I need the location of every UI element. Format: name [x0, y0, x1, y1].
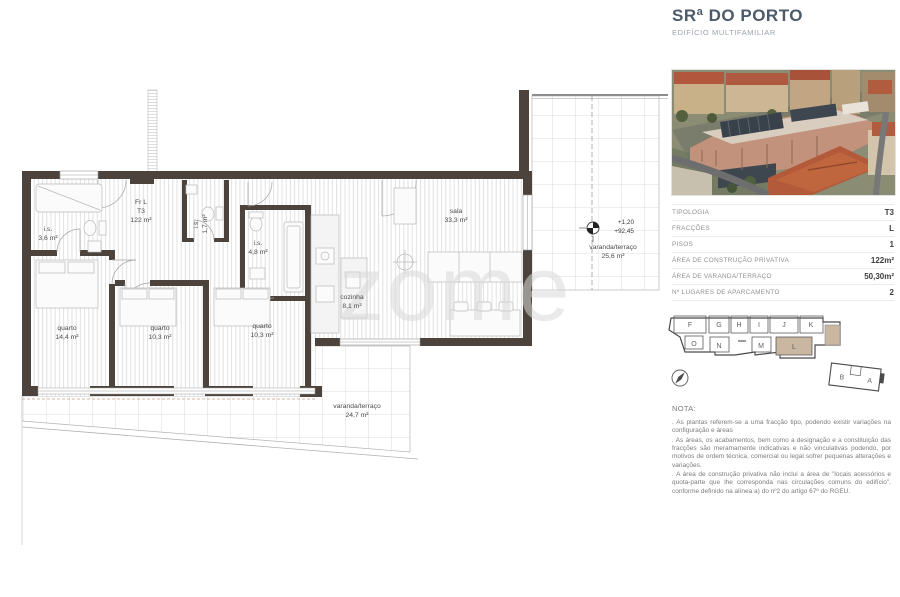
unit-k: K: [809, 322, 814, 329]
unit-m: M: [758, 343, 764, 350]
room-label-is3: i.s.: [254, 240, 263, 247]
svg-text:1,7 m²: 1,7 m²: [202, 214, 209, 234]
page-subtitle: EDIFÍCIO MULTIFAMILIAR: [672, 28, 803, 37]
unit-label: Fr L: [135, 199, 147, 206]
aerial-photo: [672, 70, 895, 195]
svg-text:4,8 m²: 4,8 m²: [248, 249, 268, 256]
sidebar: SRª DO PORTO EDIFÍCIO MULTIFAMILIAR: [668, 0, 900, 597]
detail-row-tipologia: TIPOLOGIA T3: [672, 205, 894, 221]
unit-h: H: [736, 322, 741, 329]
nota-section: NOTA: . As plantas referem-se a uma frac…: [672, 404, 891, 497]
detail-row-fraccoes: FRACÇÕES L: [672, 221, 894, 237]
svg-text:10,3 m²: 10,3 m²: [250, 332, 274, 339]
svg-text:3,6 m²: 3,6 m²: [38, 235, 58, 242]
project-header: SRª DO PORTO EDIFÍCIO MULTIFAMILIAR: [672, 6, 803, 37]
room-label-quarto2: quarto: [150, 325, 169, 332]
nota-paragraph: . As plantas referem-se a uma fracção ti…: [672, 419, 891, 436]
svg-text:33,3 m²: 33,3 m²: [444, 217, 468, 224]
unit-g: G: [716, 322, 721, 329]
room-label-is1: i.s.: [44, 226, 53, 233]
svg-text:122 m²: 122 m²: [130, 217, 152, 224]
compass-icon: [672, 370, 688, 386]
detail-row-area-varanda: ÁREA DE VARANDA/TERRAÇO 50,30m²: [672, 269, 894, 285]
room-label-cozinha: cozinha: [340, 294, 364, 301]
annex-building: B A: [829, 363, 885, 391]
svg-text:i.s.: i.s.: [193, 220, 200, 229]
svg-text:8,1 m²: 8,1 m²: [342, 303, 362, 310]
svg-text:10,3 m²: 10,3 m²: [148, 334, 172, 341]
neighbour-wall: [148, 90, 157, 172]
level-value: +1,20: [618, 219, 635, 226]
nota-paragraph: . A área de construção privativa não inc…: [672, 471, 891, 496]
altitude-value: +92,45: [614, 228, 634, 235]
floor-plan-drawing: zome +1,20 +92,45 Fr L T3 122 m² i.s. 3,…: [0, 0, 668, 597]
detail-row-pisos: PISOS 1: [672, 237, 894, 253]
svg-text:T3: T3: [137, 208, 145, 215]
watermark: zome: [339, 238, 572, 340]
floor-plan: zome +1,20 +92,45 Fr L T3 122 m² i.s. 3,…: [0, 0, 668, 597]
svg-text:24,7 m²: 24,7 m²: [345, 412, 369, 419]
nota-title: NOTA:: [672, 404, 891, 413]
room-label-sala: sala: [450, 208, 463, 215]
room-label-terraco-bottom: varanda/terraço: [333, 403, 381, 410]
detail-row-area-construcao: ÁREA DE CONSTRUÇÃO PRIVATIVA 122m²: [672, 253, 894, 269]
page-title: SRª DO PORTO: [672, 6, 803, 26]
aerial-photo-illustration: [672, 70, 895, 195]
key-plan: F G H I J K O N M L B A: [668, 308, 900, 400]
detail-row-aparcamento: Nº LUGARES DE APARCAMENTO 2: [672, 285, 894, 301]
nota-paragraph: . As áreas, os acabamentos, bem como a d…: [672, 437, 891, 470]
room-label-quarto3: quarto: [252, 323, 271, 330]
unit-f: F: [688, 322, 692, 329]
unit-o: O: [691, 341, 697, 348]
room-label-terraco-top: varanda/terraço: [589, 244, 637, 251]
unit-j: J: [782, 322, 786, 329]
floorplan-sheet: zome +1,20 +92,45 Fr L T3 122 m² i.s. 3,…: [0, 0, 900, 597]
unit-l-highlighted: L: [792, 344, 796, 351]
unit-n: N: [716, 343, 721, 350]
svg-text:25,6 m²: 25,6 m²: [601, 253, 625, 260]
details-table: TIPOLOGIA T3 FRACÇÕES L PISOS 1 ÁREA DE …: [672, 204, 894, 301]
room-label-quarto1: quarto: [57, 325, 76, 332]
keyplan-extra-block: [825, 325, 840, 345]
svg-text:14,4 m²: 14,4 m²: [55, 334, 79, 341]
unit-i: I: [758, 322, 760, 329]
